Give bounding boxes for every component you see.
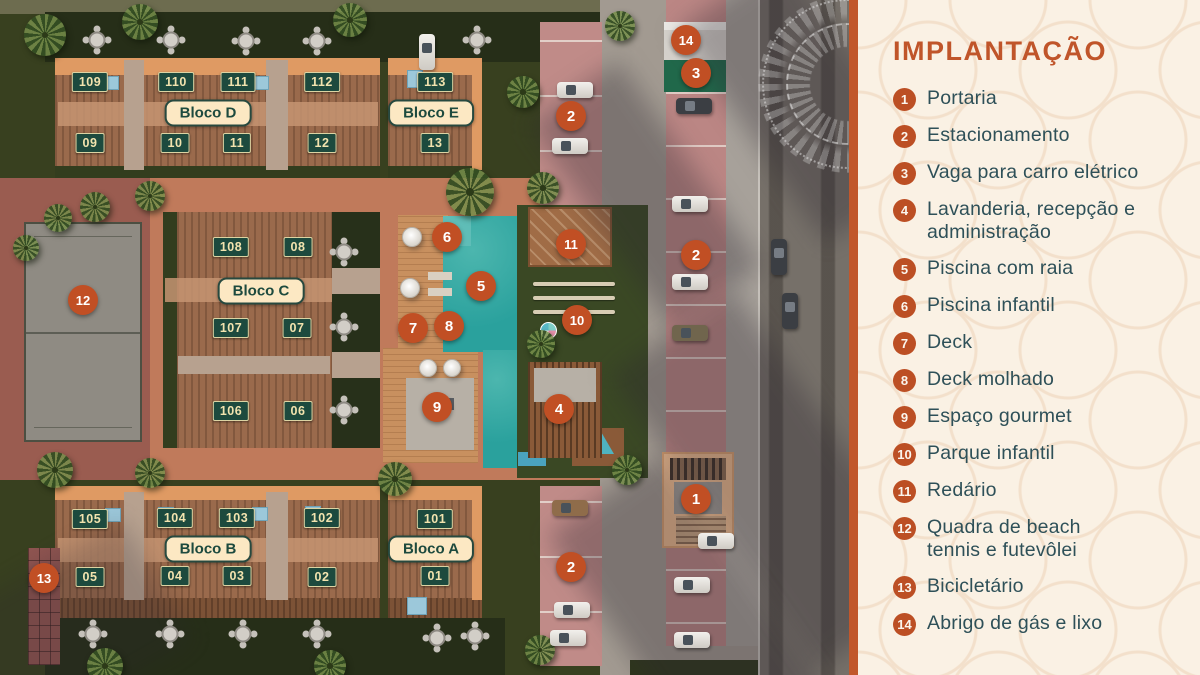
palm-tree [333,3,367,37]
legend-list: 1Portaria2Estacionamento3Vaga para carro… [858,87,1200,636]
patio-table [309,33,326,50]
legend-panel: IMPLANTAÇÃO 1Portaria2Estacionamento3Vag… [858,0,1200,675]
patio-table [238,33,255,50]
palm-tree [37,452,73,488]
legend-number-badge: 5 [893,258,916,281]
legend-item-13: 13Bicicletário [893,575,1182,599]
block-label-b: Bloco B [165,536,252,563]
pool-lounger [428,288,452,296]
legend-label: Vaga para carro elétrico [927,161,1138,184]
map-marker-2: 2 [681,240,711,270]
palm-tree [527,172,559,204]
patio-table [429,630,446,647]
palm-tree [135,458,165,488]
map-marker-5: 5 [466,271,496,301]
legend-label: Portaria [927,87,997,110]
pool-umbrella [419,359,437,377]
legend-number-badge: 14 [893,613,916,636]
fitness-bar [533,282,615,286]
bloco-d-planter [55,166,380,178]
block-label-c: Bloco C [218,278,305,305]
map-marker-4: 4 [544,394,574,424]
patio-table [467,628,484,645]
map-marker-2: 2 [556,552,586,582]
map-marker-9: 9 [422,392,452,422]
palm-tree [13,235,39,261]
legend-number-badge: 6 [893,295,916,318]
page-title: IMPLANTAÇÃO [893,36,1200,67]
bloco-c-pergola-2 [332,352,380,378]
parked-car [550,630,586,646]
beach-tennis-court [24,222,142,442]
legend-number-badge: 4 [893,199,916,222]
unit-badge-04: 04 [161,566,190,586]
palm-tree [122,4,158,40]
legend-label: Espaço gourmet [927,405,1072,428]
map-marker-12: 12 [68,285,98,315]
legend-number-badge: 9 [893,406,916,429]
parked-car [674,577,710,593]
legend-label: Piscina com raia [927,257,1073,280]
parked-car [676,98,712,114]
parked-car [698,533,734,549]
unit-badge-11: 11 [223,133,251,153]
legend-number-badge: 12 [893,517,916,540]
legend-number-badge: 10 [893,443,916,466]
palm-tree [378,462,412,496]
unit-badge-02: 02 [308,567,337,587]
unit-badge-06: 06 [284,401,313,421]
legend-item-10: 10Parque infantil [893,442,1182,466]
bloco-c-planter [163,212,177,448]
legend-item-8: 8Deck molhado [893,368,1182,392]
patio-table [235,626,252,643]
legend-number-badge: 8 [893,369,916,392]
block-label-e: Bloco E [388,100,474,127]
unit-badge-104: 104 [157,508,193,528]
unit-badge-09: 09 [76,133,105,153]
parked-car [672,325,708,341]
parked-car [771,239,787,275]
legend-item-1: 1Portaria [893,87,1182,111]
map-marker-11: 11 [556,229,586,259]
unit-badge-03: 03 [223,566,252,586]
unit-badge-103: 103 [219,508,255,528]
block-label-d: Bloco D [165,100,252,127]
court-line [34,427,132,428]
palm-tree [605,11,635,41]
legend-label: Estacionamento [927,124,1070,147]
unit-badge-112: 112 [304,72,340,92]
legend-item-9: 9Espaço gourmet [893,405,1182,429]
legend-label: Redário [927,479,997,502]
map-marker-3: 3 [681,58,711,88]
palm-tree [314,650,346,675]
parked-car [674,632,710,648]
patio-table [469,32,486,49]
unit-badge-101: 101 [417,509,453,529]
legend-item-6: 6Piscina infantil [893,294,1182,318]
palm-tree [135,181,165,211]
palm-tree [446,168,494,216]
parked-car [419,34,435,70]
legend-item-4: 4Lavanderia, recepção e administração [893,198,1182,244]
legend-number-badge: 7 [893,332,916,355]
legend-number-badge: 3 [893,162,916,185]
unit-badge-13: 13 [421,133,450,153]
patio-table [336,402,353,419]
pool-umbrella [402,227,422,247]
patio-table [336,319,353,336]
palm-tree [527,330,555,358]
map-marker-2: 2 [556,101,586,131]
unit-badge-110: 110 [158,72,194,92]
map-marker-1: 1 [681,484,711,514]
patio-table [163,32,180,49]
palm-tree [80,192,110,222]
lap-pool-lane [483,350,517,468]
parked-car [557,82,593,98]
legend-label: Deck molhado [927,368,1054,391]
legend-number-badge: 2 [893,125,916,148]
legend-item-12: 12Quadra de beach tennis e futevôlei [893,516,1182,562]
panel-divider [849,0,858,675]
legend-label: Lavanderia, recepção e administração [927,198,1135,244]
legend-number-badge: 13 [893,576,916,599]
unit-badge-01: 01 [421,566,450,586]
parked-car [672,274,708,290]
unit-badge-10: 10 [161,133,190,153]
patio-table [89,32,106,49]
pool-lounger [428,272,452,280]
legend-label: Quadra de beach tennis e futevôlei [927,516,1081,562]
unit-badge-108: 108 [213,237,249,257]
legend-label: Piscina infantil [927,294,1055,317]
unit-badge-05: 05 [76,567,105,587]
unit-badge-102: 102 [304,508,340,528]
parked-car [672,196,708,212]
bloco-c-pergola-1 [332,268,380,294]
patio-table [336,244,353,261]
patio-table [162,626,179,643]
palm-tree [612,455,642,485]
legend-number-badge: 1 [893,88,916,111]
unit-badge-08: 08 [284,237,313,257]
legend-label: Parque infantil [927,442,1055,465]
unit-badge-12: 12 [308,133,337,153]
unit-badge-105: 105 [72,509,108,529]
court-net [26,332,140,334]
legend-number-badge: 11 [893,480,916,503]
map-marker-14: 14 [671,25,701,55]
patio-table [85,626,102,643]
implantacao-screen: 1091101111121130910111213108081070710606… [0,0,1200,675]
plunge-pool [407,597,427,615]
parked-car [552,500,588,516]
patio-table [309,626,326,643]
legend-item-11: 11Redário [893,479,1182,503]
legend-item-7: 7Deck [893,331,1182,355]
unit-badge-07: 07 [283,318,312,338]
unit-badge-106: 106 [213,401,249,421]
parked-car [782,293,798,329]
legend-label: Bicicletário [927,575,1024,598]
map-marker-10: 10 [562,305,592,335]
court-line [34,236,132,237]
bloco-b-corridor-2 [266,492,288,600]
legend-item-5: 5Piscina com raia [893,257,1182,281]
map-marker-8: 8 [434,311,464,341]
block-label-a: Bloco A [388,536,474,563]
palm-tree [44,204,72,232]
legend-item-3: 3Vaga para carro elétrico [893,161,1182,185]
unit-badge-109: 109 [72,72,108,92]
legend-label: Deck [927,331,972,354]
fitness-bar [533,296,615,300]
parked-car [554,602,590,618]
map-marker-13: 13 [29,563,59,593]
unit-badge-111: 111 [221,72,256,92]
bloco-d-corridor-1 [124,60,144,170]
legend-item-14: 14Abrigo de gás e lixo [893,612,1182,636]
palm-tree [507,76,539,108]
unit-badge-113: 113 [417,72,453,92]
bloco-a-veranda [388,598,482,618]
parked-car [552,138,588,154]
map-marker-6: 6 [432,222,462,252]
unit-badge-107: 107 [213,318,249,338]
pool-umbrella [443,359,461,377]
map-marker-7: 7 [398,313,428,343]
legend-label: Abrigo de gás e lixo [927,612,1102,635]
bloco-c-corridor [178,356,330,374]
legend-item-2: 2Estacionamento [893,124,1182,148]
site-plan-map: 1091101111121130910111213108081070710606… [0,0,849,675]
palm-tree [24,14,66,56]
bloco-b-roof [55,486,380,500]
pool-umbrella [400,278,420,298]
bloco-d-corridor-2 [266,60,288,170]
